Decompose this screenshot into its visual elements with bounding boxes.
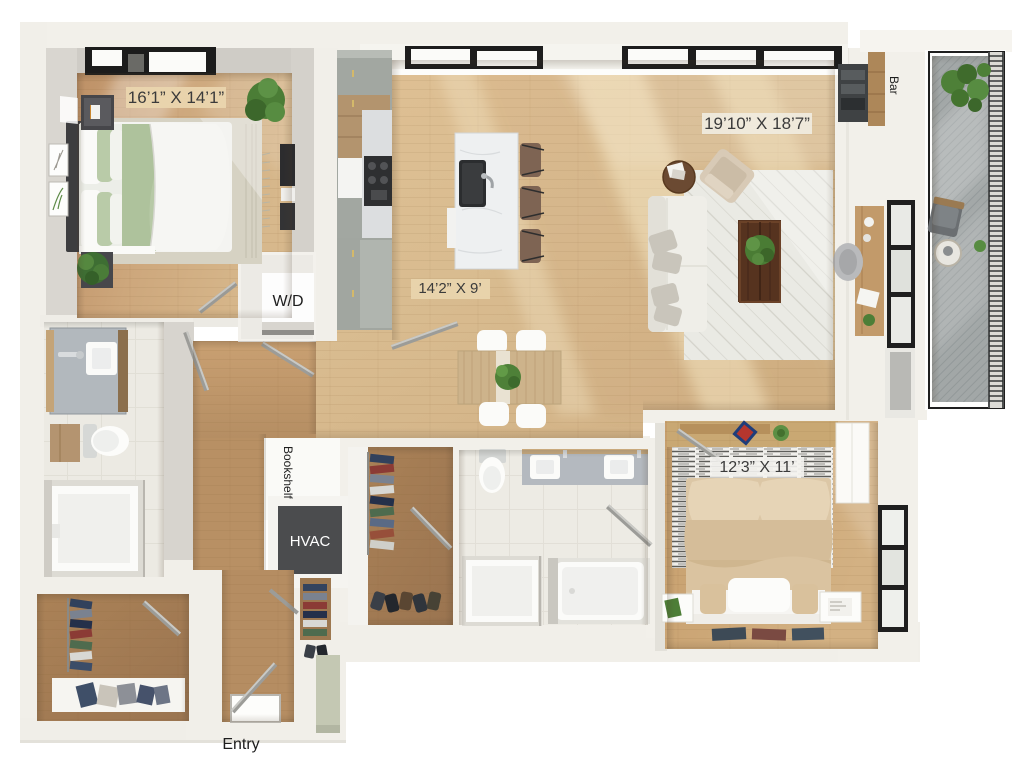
svg-text:Bookshelf: Bookshelf — [281, 446, 295, 499]
svg-text:Bar: Bar — [887, 76, 901, 95]
svg-text:14’2” X 9’: 14’2” X 9’ — [418, 280, 481, 297]
svg-text:16’1” X 14’1”: 16’1” X 14’1” — [128, 88, 225, 107]
svg-text:W/D: W/D — [272, 293, 303, 310]
svg-text:HVAC: HVAC — [290, 533, 331, 550]
svg-text:12’3” X 11’: 12’3” X 11’ — [719, 459, 794, 476]
svg-text:19’10” X 18’7”: 19’10” X 18’7” — [704, 114, 810, 133]
svg-text:Entry: Entry — [222, 736, 259, 753]
